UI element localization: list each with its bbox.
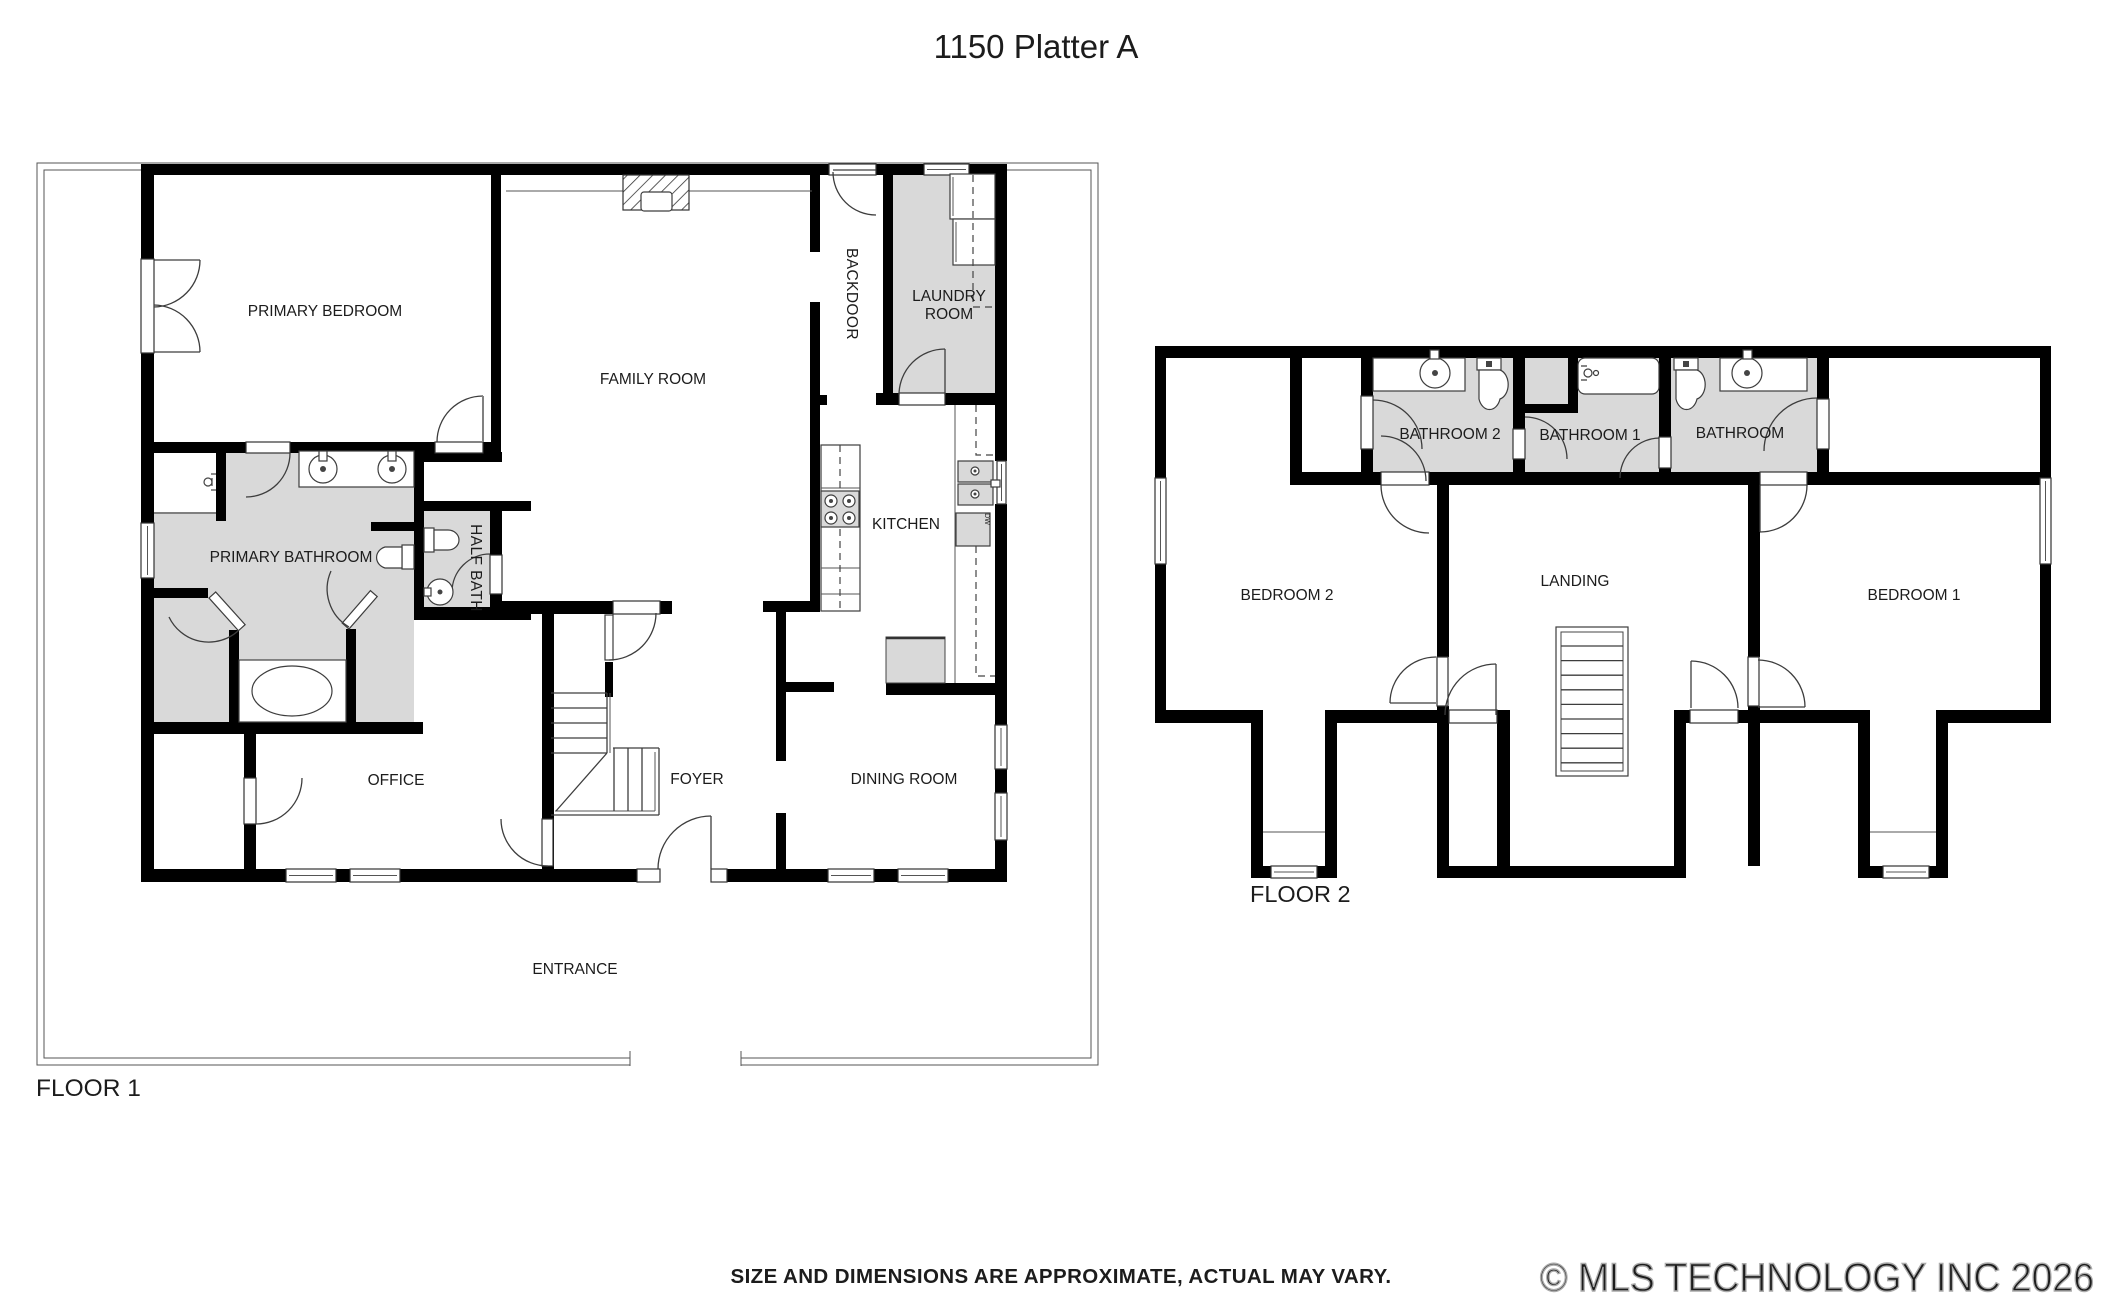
svg-text:FLOOR 2: FLOOR 2	[1250, 881, 1351, 907]
svg-text:BEDROOM 2: BEDROOM 2	[1240, 587, 1333, 604]
svg-text:OFFICE: OFFICE	[368, 772, 425, 789]
svg-text:PRIMARY BATHROOM: PRIMARY BATHROOM	[210, 549, 373, 566]
svg-text:© MLS TECHNOLOGY INC 2026: © MLS TECHNOLOGY INC 2026	[1540, 1256, 2094, 1300]
svg-text:FOYER: FOYER	[670, 771, 723, 788]
svg-text:HALF BATH: HALF BATH	[467, 524, 484, 612]
svg-text:BACKDOOR: BACKDOOR	[843, 248, 860, 340]
svg-text:PRIMARY BEDROOM: PRIMARY BEDROOM	[248, 303, 402, 320]
svg-text:FLOOR 1: FLOOR 1	[36, 1075, 141, 1102]
svg-text:SIZE AND DIMENSIONS ARE APPROX: SIZE AND DIMENSIONS ARE APPROXIMATE, ACT…	[731, 1265, 1392, 1288]
svg-text:FAMILY ROOM: FAMILY ROOM	[600, 371, 706, 388]
svg-text:BATHROOM 1: BATHROOM 1	[1539, 427, 1640, 444]
svg-text:BEDROOM 1: BEDROOM 1	[1867, 587, 1960, 604]
svg-text:BATHROOM: BATHROOM	[1696, 425, 1784, 442]
svg-text:ROOM: ROOM	[925, 306, 973, 323]
svg-text:LAUNDRY: LAUNDRY	[912, 288, 986, 305]
svg-text:BATHROOM 2: BATHROOM 2	[1399, 426, 1500, 443]
svg-text:LANDING: LANDING	[1541, 573, 1610, 590]
svg-text:DW: DW	[983, 513, 990, 525]
svg-text:KITCHEN: KITCHEN	[872, 516, 940, 533]
svg-text:DINING ROOM: DINING ROOM	[851, 771, 958, 788]
svg-text:1150 Platter A: 1150 Platter A	[934, 28, 1139, 65]
svg-text:ENTRANCE: ENTRANCE	[532, 961, 617, 978]
